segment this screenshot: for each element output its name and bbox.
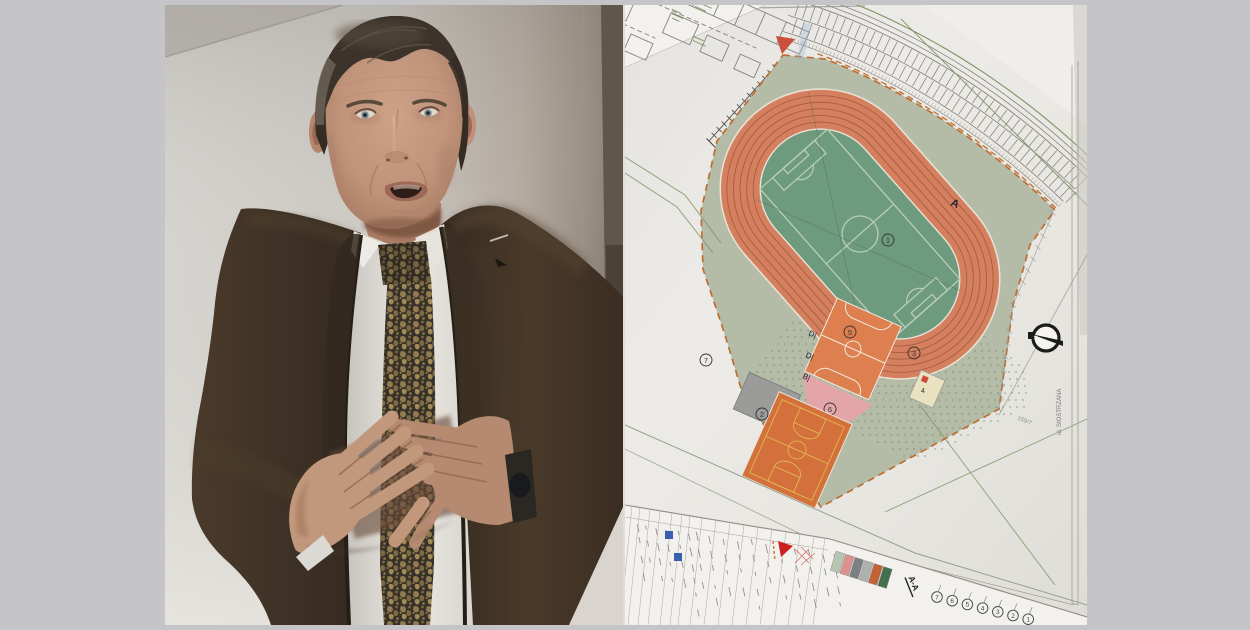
svg-text:1: 1 bbox=[886, 236, 890, 245]
svg-text:1: 1 bbox=[1026, 617, 1030, 624]
svg-text:5: 5 bbox=[966, 602, 970, 609]
svg-text:3: 3 bbox=[912, 349, 916, 358]
svg-text:ul. SIOSTRZANA: ul. SIOSTRZANA bbox=[1057, 389, 1063, 435]
svg-text:4: 4 bbox=[921, 388, 925, 395]
svg-text:2: 2 bbox=[1011, 613, 1015, 620]
svg-text:3: 3 bbox=[996, 609, 1000, 616]
svg-text:6: 6 bbox=[950, 598, 954, 605]
svg-text:7: 7 bbox=[935, 594, 939, 601]
svg-text:5: 5 bbox=[848, 328, 852, 337]
svg-text:6: 6 bbox=[828, 405, 832, 414]
svg-text:2: 2 bbox=[760, 410, 764, 419]
svg-text:7: 7 bbox=[704, 356, 708, 365]
svg-text:4: 4 bbox=[981, 605, 985, 612]
